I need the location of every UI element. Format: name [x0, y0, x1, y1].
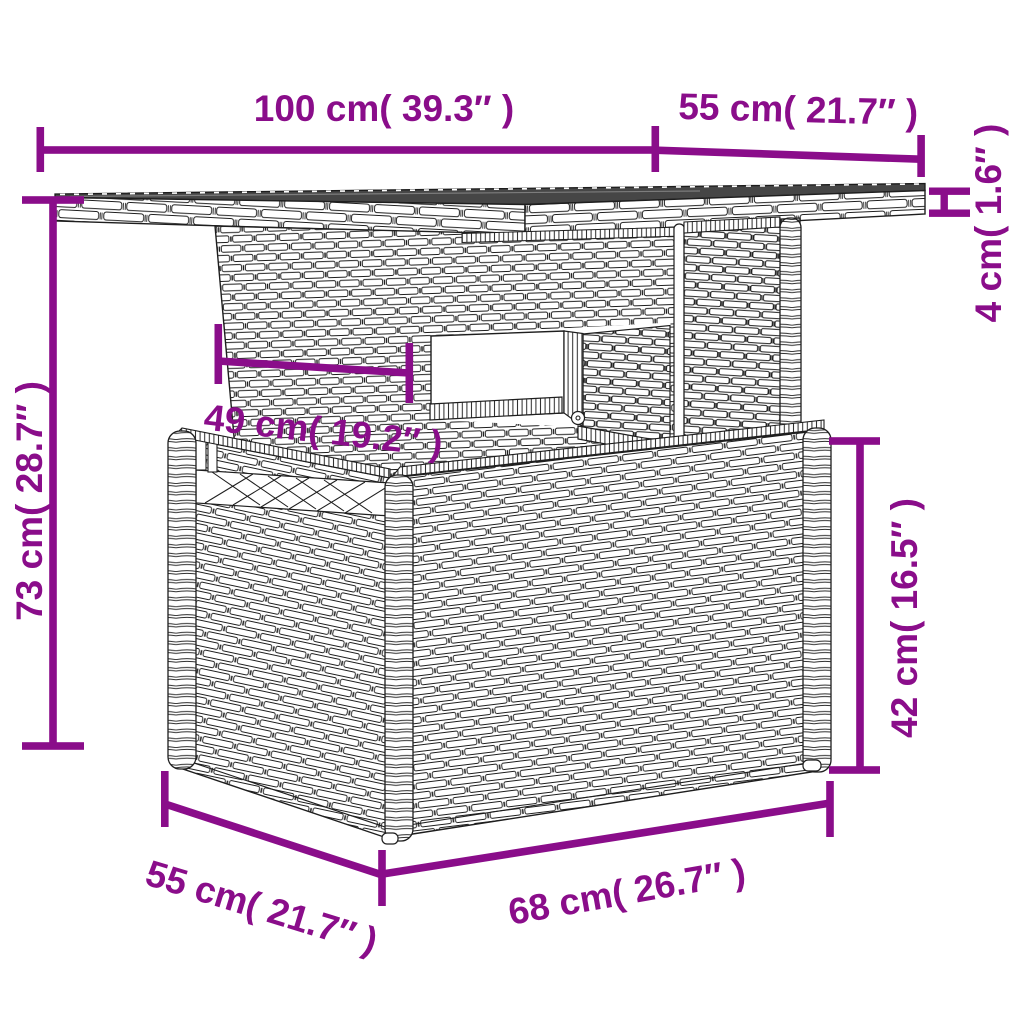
- svg-text:73 cm( 28.7″ ): 73 cm( 28.7″ ): [9, 381, 50, 621]
- svg-text:55 cm( 21.7″ ): 55 cm( 21.7″ ): [678, 86, 919, 133]
- svg-text:42 cm( 16.5″ ): 42 cm( 16.5″ ): [884, 498, 925, 738]
- svg-text:100 cm( 39.3″ ): 100 cm( 39.3″ ): [254, 88, 514, 129]
- svg-text:4 cm( 1.6″ ): 4 cm( 1.6″ ): [968, 124, 1009, 323]
